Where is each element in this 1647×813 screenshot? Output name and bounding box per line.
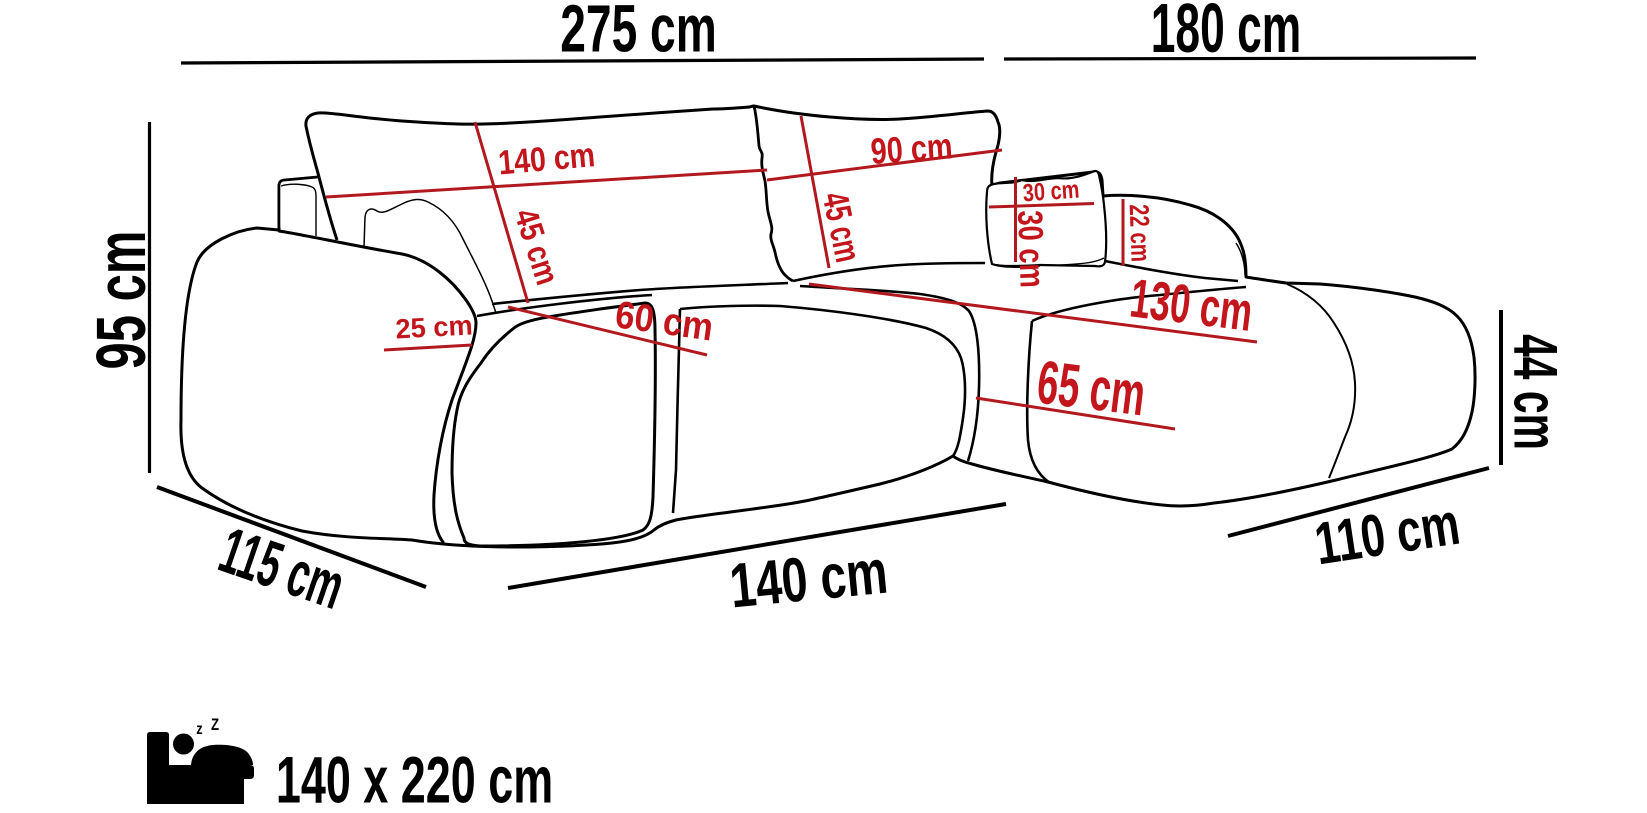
svg-text:22 cm: 22 cm [1123,204,1156,263]
svg-text:95 cm: 95 cm [81,231,160,370]
svg-text:25 cm: 25 cm [395,309,474,344]
svg-text:Z: Z [211,716,219,735]
svg-text:90 cm: 90 cm [869,125,953,172]
svg-text:30 cm: 30 cm [1022,175,1080,206]
svg-text:140 cm: 140 cm [727,536,891,621]
svg-text:44 cm: 44 cm [1500,334,1568,450]
svg-text:275 cm: 275 cm [560,0,717,67]
svg-text:65 cm: 65 cm [1034,347,1149,428]
svg-text:180 cm: 180 cm [1151,0,1301,68]
svg-text:z: z [196,721,202,739]
svg-text:30 cm: 30 cm [1010,210,1052,289]
svg-text:140 x 220 cm: 140 x 220 cm [276,743,553,813]
